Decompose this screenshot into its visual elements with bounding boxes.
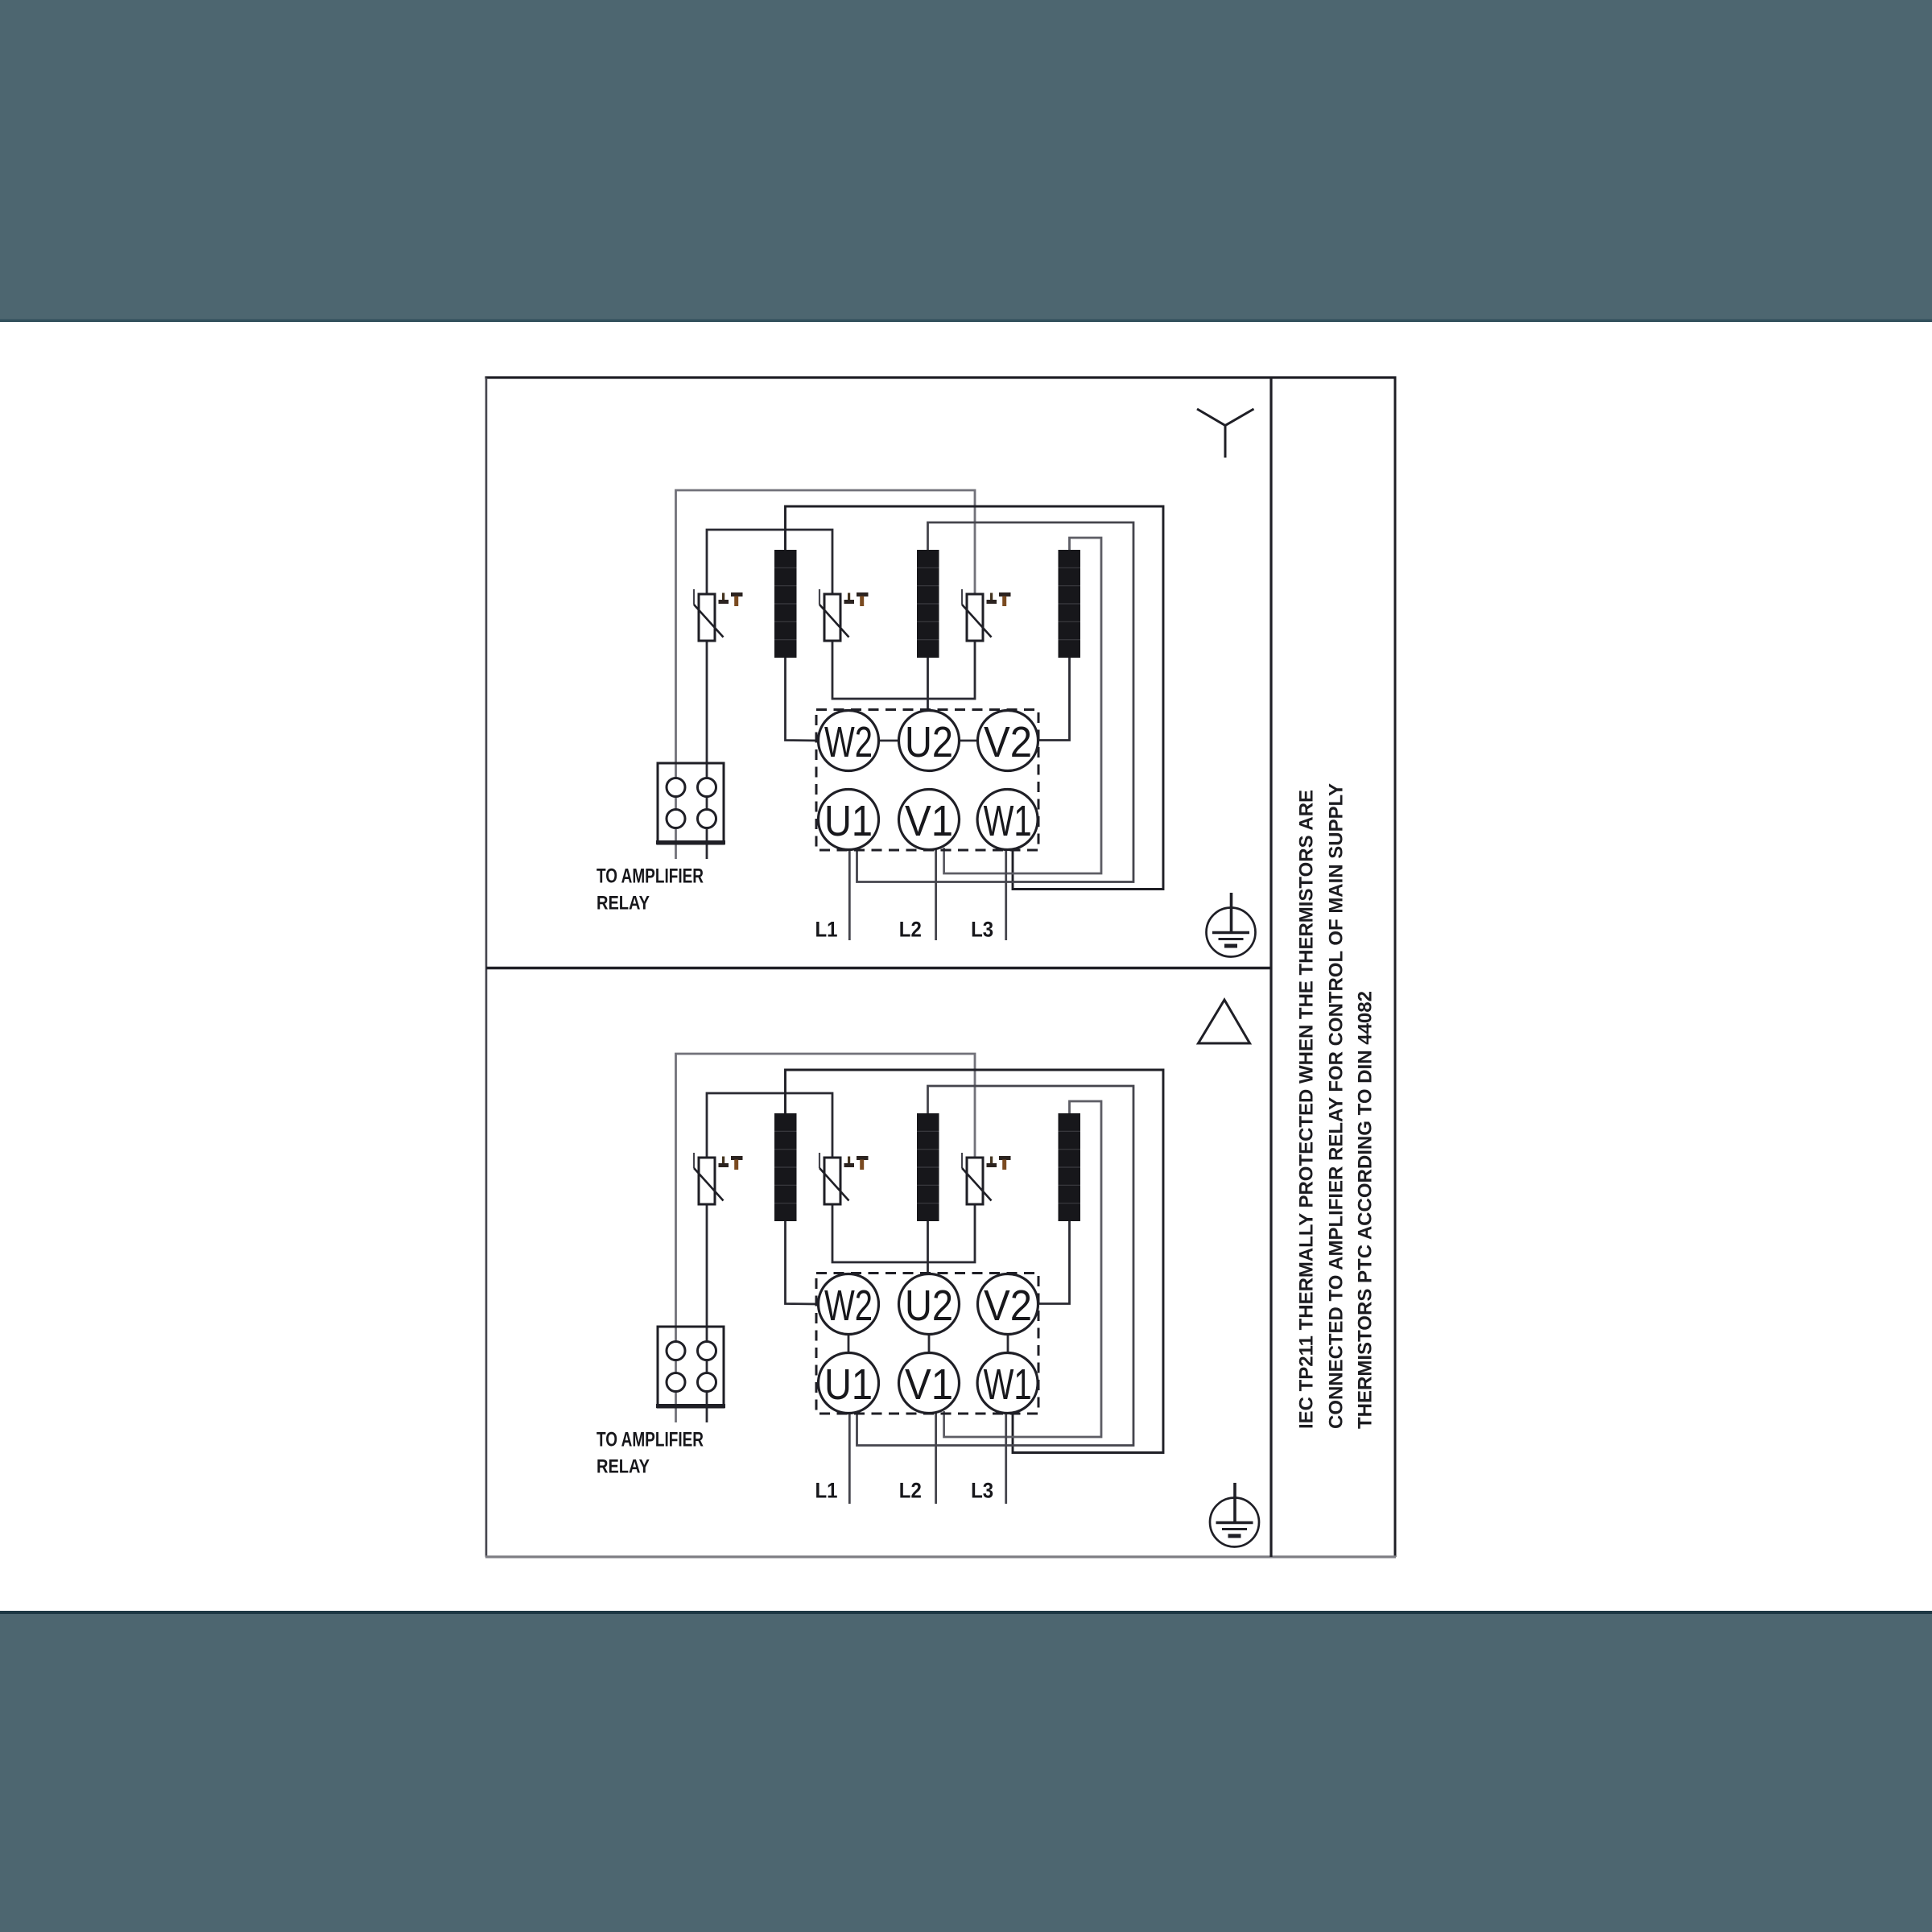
- svg-text:IEC TP211 THERMALLY PROTECTED: IEC TP211 THERMALLY PROTECTED WHEN THE T…: [1296, 790, 1318, 1429]
- svg-text:L3: L3: [971, 918, 993, 942]
- svg-text:U2: U2: [905, 1282, 953, 1330]
- svg-text:W2: W2: [824, 1282, 873, 1330]
- svg-text:RELAY: RELAY: [597, 893, 650, 914]
- svg-text:V1: V1: [905, 797, 953, 845]
- svg-text:RELAY: RELAY: [597, 1456, 650, 1478]
- svg-text:V2: V2: [984, 1282, 1032, 1330]
- svg-text:V2: V2: [984, 718, 1032, 766]
- svg-text:TO AMPLIFIER: TO AMPLIFIER: [597, 1429, 704, 1451]
- svg-text:W1: W1: [984, 1360, 1032, 1409]
- svg-text:U2: U2: [905, 718, 953, 766]
- svg-text:THERMISTORS PTC ACCORDING TO D: THERMISTORS PTC ACCORDING TO DIN 44082: [1355, 991, 1377, 1429]
- svg-text:L1: L1: [815, 918, 838, 942]
- svg-text:W2: W2: [824, 718, 873, 766]
- svg-text:L2: L2: [899, 918, 922, 942]
- svg-text:W1: W1: [984, 797, 1032, 845]
- svg-text:L3: L3: [971, 1479, 993, 1503]
- svg-text:L2: L2: [899, 1479, 922, 1503]
- svg-text:V1: V1: [905, 1360, 953, 1409]
- svg-text:U1: U1: [824, 1360, 873, 1409]
- svg-text:U1: U1: [824, 797, 873, 845]
- svg-text:TO AMPLIFIER: TO AMPLIFIER: [597, 865, 704, 888]
- svg-text:CONNECTED TO AMPLIFIER RELAY F: CONNECTED TO AMPLIFIER RELAY FOR CONTROL…: [1326, 783, 1348, 1429]
- svg-text:L1: L1: [815, 1479, 838, 1503]
